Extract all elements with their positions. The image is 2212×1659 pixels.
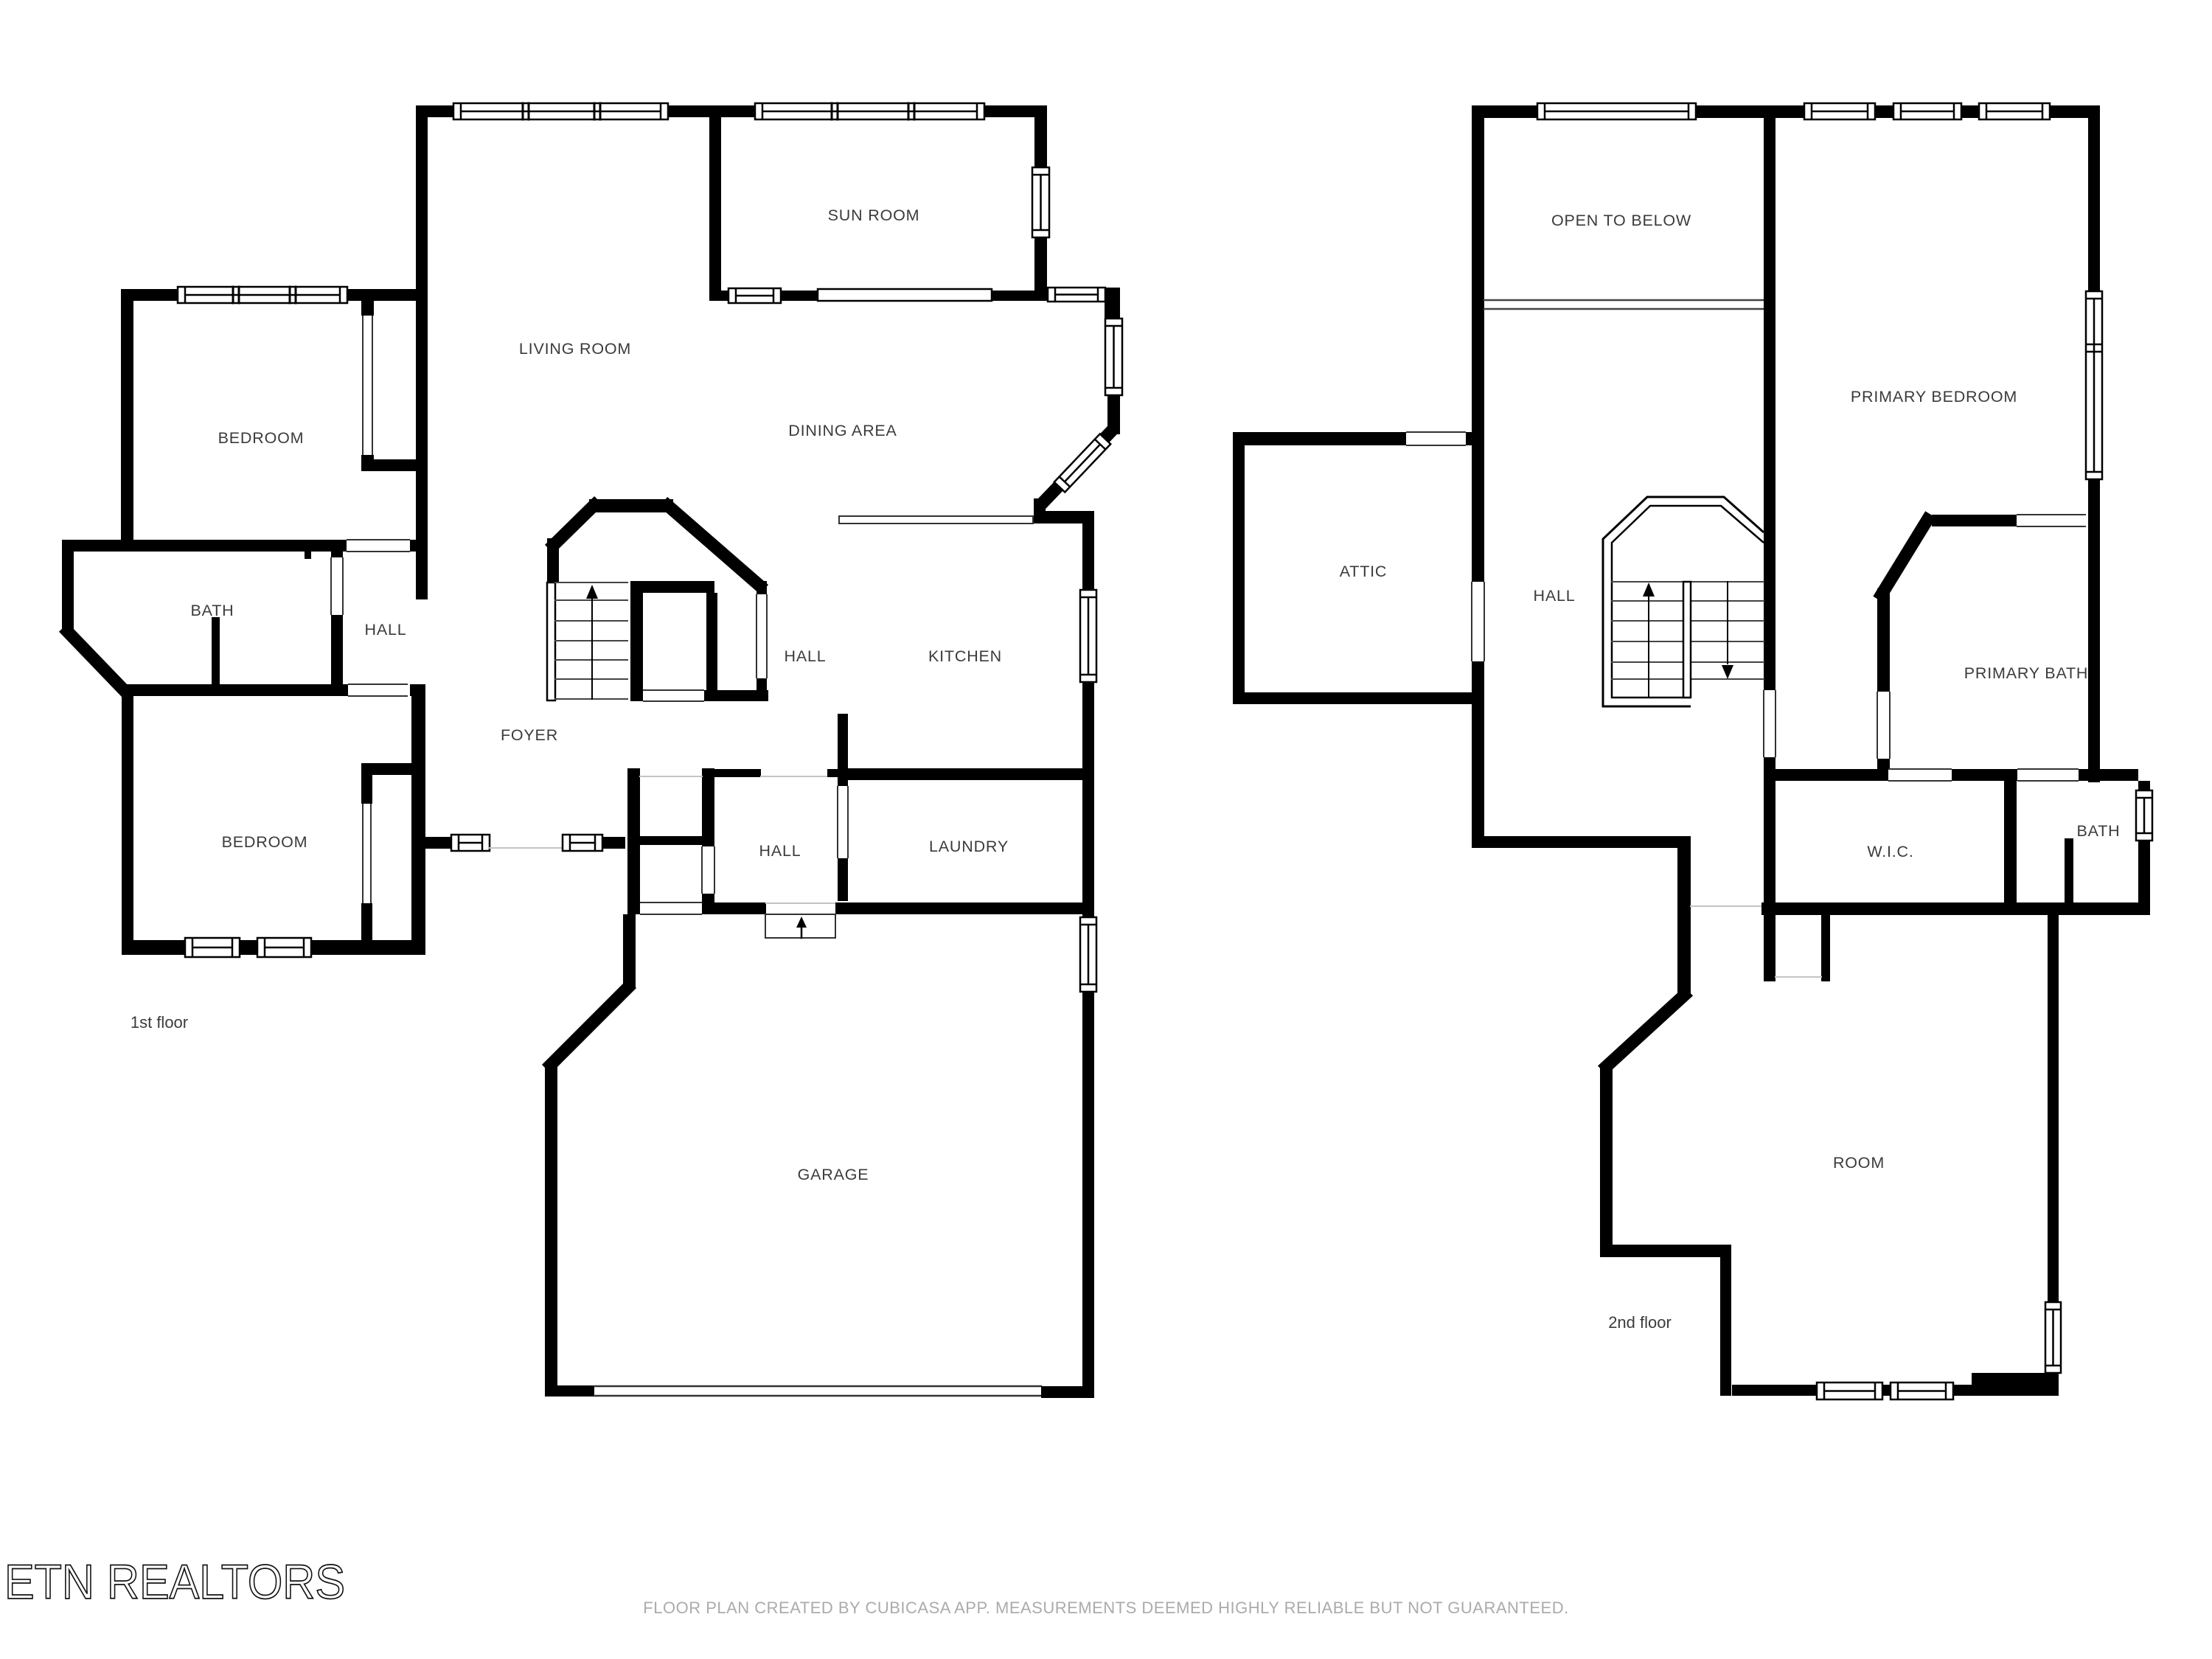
svg-text:ATTIC: ATTIC <box>1340 563 1388 580</box>
svg-text:HALL: HALL <box>759 842 801 860</box>
svg-text:FLOOR PLAN CREATED BY CUBICASA: FLOOR PLAN CREATED BY CUBICASA APP. MEAS… <box>643 1599 1568 1617</box>
svg-text:ROOM: ROOM <box>1833 1154 1885 1172</box>
svg-text:PRIMARY BATH: PRIMARY BATH <box>1964 664 2089 682</box>
svg-text:HALL: HALL <box>365 621 407 639</box>
svg-text:BATH: BATH <box>191 602 234 619</box>
svg-text:SUN ROOM: SUN ROOM <box>828 206 920 224</box>
svg-text:ETN REALTORS: ETN REALTORS <box>4 1554 345 1609</box>
svg-text:PRIMARY BEDROOM: PRIMARY BEDROOM <box>1851 388 2017 406</box>
svg-text:OPEN TO BELOW: OPEN TO BELOW <box>1551 212 1691 229</box>
svg-text:KITCHEN: KITCHEN <box>928 647 1002 665</box>
svg-text:LAUNDRY: LAUNDRY <box>929 838 1009 855</box>
svg-text:BEDROOM: BEDROOM <box>222 833 308 851</box>
svg-text:BEDROOM: BEDROOM <box>218 429 305 447</box>
svg-text:2nd floor: 2nd floor <box>1608 1313 1672 1332</box>
svg-text:LIVING ROOM: LIVING ROOM <box>519 340 631 358</box>
svg-text:W.I.C.: W.I.C. <box>1867 843 1913 860</box>
svg-text:DINING AREA: DINING AREA <box>788 422 897 439</box>
svg-text:1st floor: 1st floor <box>131 1013 188 1032</box>
svg-text:BATH: BATH <box>2077 822 2121 840</box>
svg-text:FOYER: FOYER <box>501 726 558 744</box>
svg-text:GARAGE: GARAGE <box>798 1166 869 1183</box>
svg-text:HALL: HALL <box>1534 587 1576 605</box>
svg-text:HALL: HALL <box>785 647 827 665</box>
